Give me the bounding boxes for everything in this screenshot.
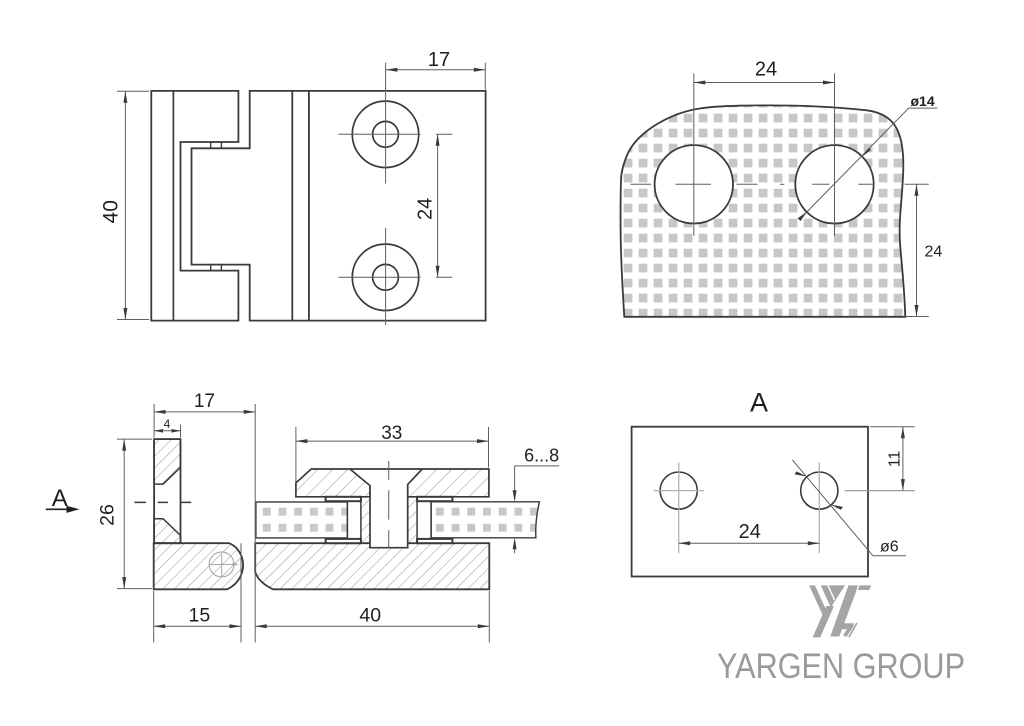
svg-text:ø6: ø6 (880, 539, 899, 556)
svg-text:24: 24 (739, 521, 761, 543)
svg-text:6...8: 6...8 (524, 446, 559, 466)
svg-text:26: 26 (97, 504, 119, 526)
svg-text:40: 40 (100, 200, 123, 223)
svg-text:15: 15 (189, 605, 211, 627)
svg-text:33: 33 (381, 423, 402, 444)
svg-text:24: 24 (755, 59, 777, 81)
svg-text:17: 17 (194, 391, 215, 412)
svg-text:17: 17 (428, 49, 450, 71)
svg-text:YARGEN GROUP: YARGEN GROUP (717, 647, 965, 686)
svg-text:4: 4 (164, 417, 171, 431)
svg-text:A: A (52, 485, 68, 512)
svg-text:40: 40 (359, 605, 381, 627)
svg-text:ø14: ø14 (911, 93, 935, 109)
svg-text:11: 11 (887, 451, 904, 468)
svg-text:24: 24 (925, 244, 943, 261)
svg-text:A: A (750, 388, 768, 418)
svg-text:24: 24 (415, 198, 437, 220)
